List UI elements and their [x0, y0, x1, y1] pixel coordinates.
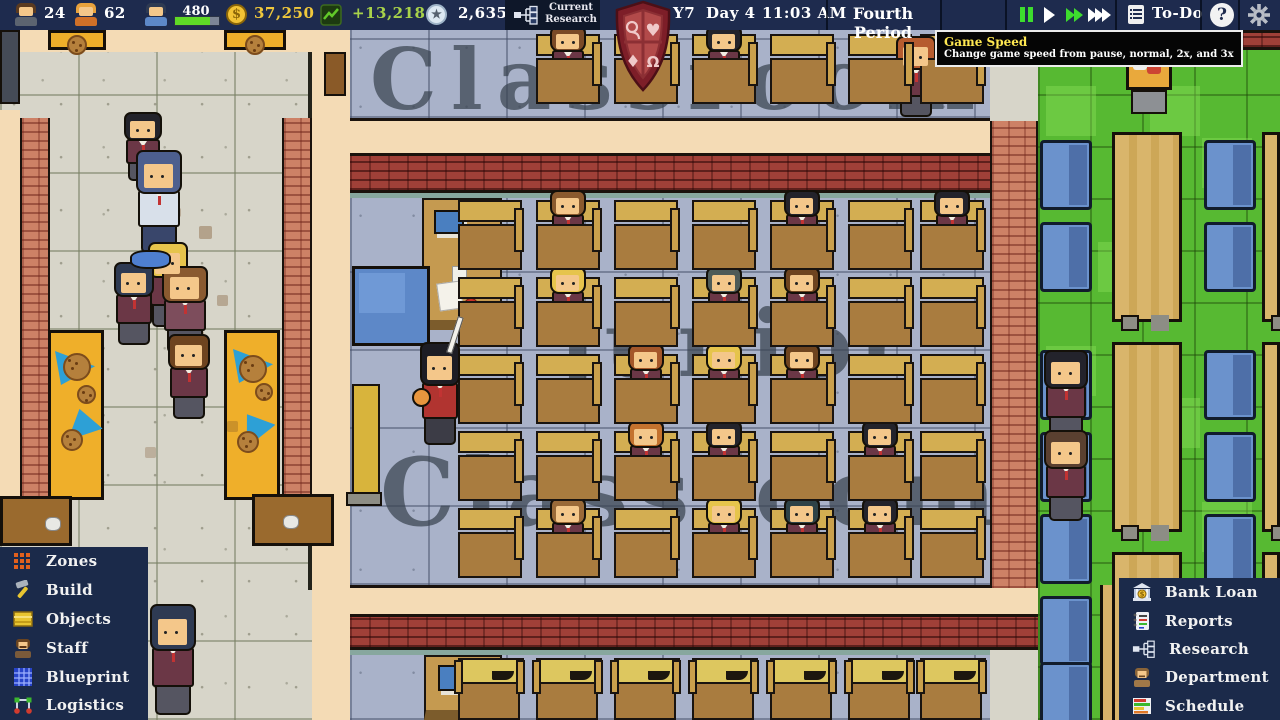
desk-chair[interactable]	[920, 277, 984, 299]
game-window: Classroom Junior Classroom	[0, 0, 1280, 720]
desk-post	[904, 42, 914, 86]
desk-post	[592, 285, 602, 329]
grass-patch	[1046, 86, 1096, 136]
desk-post	[610, 660, 619, 694]
desk[interactable]	[848, 455, 912, 501]
desk-post	[748, 42, 758, 86]
desk-top	[848, 658, 914, 684]
desk-post	[672, 660, 681, 694]
desk-post	[670, 285, 680, 329]
desk-post	[828, 660, 837, 694]
brick-wall-vertical	[20, 118, 50, 502]
desk[interactable]	[920, 682, 982, 720]
banner-base	[346, 492, 382, 506]
menu-item-objects[interactable]: Objects	[0, 605, 148, 634]
desk[interactable]	[614, 455, 678, 501]
menu-item-zones[interactable]: Zones	[0, 547, 148, 576]
desk-post	[916, 660, 925, 694]
brick-wall	[350, 153, 1038, 193]
desk-post	[594, 660, 603, 694]
brick-wall	[350, 614, 1038, 650]
desk-post	[514, 362, 524, 406]
desk-top	[692, 658, 758, 684]
desk-post	[976, 208, 986, 252]
desk-chair[interactable]	[848, 277, 912, 299]
desk-post	[670, 439, 680, 483]
desk[interactable]	[458, 301, 522, 347]
brick-wall-vertical	[990, 121, 1038, 588]
desk[interactable]	[458, 682, 520, 720]
desk[interactable]	[458, 455, 522, 501]
menu-item-blueprint[interactable]: Blueprint	[0, 662, 148, 691]
desk[interactable]	[770, 455, 834, 501]
speed-3x-button-c[interactable]	[1102, 8, 1111, 22]
desk-chair[interactable]	[848, 200, 912, 222]
tooltip-body: Change game speed from pause, normal, 2x…	[944, 49, 1234, 60]
tooltip-title: Game Speed	[944, 35, 1234, 49]
chair[interactable]	[1040, 662, 1092, 720]
desk-chair[interactable]	[458, 508, 522, 530]
desk-post	[826, 42, 836, 86]
money-icon	[226, 4, 247, 25]
janitor-character[interactable]	[136, 150, 182, 254]
zones-grid-icon	[13, 551, 33, 571]
desk-post	[748, 208, 758, 252]
department-person-icon	[1132, 667, 1152, 687]
picnic-table[interactable]	[1112, 342, 1182, 532]
desk-post	[514, 208, 524, 252]
door[interactable]	[324, 52, 346, 96]
management-menu: $ Bank Loan Reports Research	[1119, 578, 1280, 720]
profit-value: +13,218	[352, 4, 425, 22]
cookie-board[interactable]	[48, 330, 104, 500]
desk[interactable]	[614, 224, 678, 270]
desk-top	[614, 658, 680, 684]
speed-2x-button-b[interactable]	[1074, 8, 1083, 22]
points-value: 2,635	[458, 4, 507, 22]
chair[interactable]	[1040, 596, 1092, 666]
desk[interactable]	[770, 224, 834, 270]
desk[interactable]	[692, 682, 754, 720]
desk-post	[670, 362, 680, 406]
desk-chair[interactable]	[458, 431, 522, 453]
snack-table[interactable]	[224, 30, 286, 50]
research-label-line1: Current	[549, 2, 593, 13]
game-speed-tooltip: Game Speed Change game speed from pause,…	[935, 30, 1243, 67]
desk-chair[interactable]	[770, 34, 834, 56]
desk[interactable]	[770, 58, 834, 104]
play-button[interactable]	[1044, 7, 1055, 23]
svg-text:♥: ♥	[645, 21, 660, 41]
snack-table[interactable]	[48, 30, 106, 50]
desk-chair[interactable]	[458, 200, 522, 222]
desk[interactable]	[770, 378, 834, 424]
teacher-count: 24	[44, 4, 66, 22]
desk[interactable]	[848, 224, 912, 270]
chair[interactable]	[1040, 140, 1092, 210]
desk[interactable]	[920, 455, 984, 501]
desk-post	[514, 439, 524, 483]
capacity-bar	[174, 16, 220, 26]
desk-post	[904, 208, 914, 252]
desk-chair[interactable]	[920, 354, 984, 376]
desk[interactable]	[692, 455, 756, 501]
bank-icon: $	[1132, 582, 1152, 602]
student-capacity: 480	[172, 0, 220, 30]
research-label-line2: Research	[545, 14, 597, 25]
student-character[interactable]	[114, 262, 154, 346]
desk-chair[interactable]	[458, 277, 522, 299]
desk-post	[904, 439, 914, 483]
desk[interactable]	[614, 532, 678, 578]
desk[interactable]	[692, 532, 756, 578]
desk-post	[670, 516, 680, 560]
schedule-icon	[1132, 696, 1152, 716]
desk[interactable]	[848, 378, 912, 424]
picnic-table[interactable]	[1112, 132, 1182, 322]
desk-post	[976, 439, 986, 483]
desk[interactable]	[770, 301, 834, 347]
desk-chair[interactable]	[920, 508, 984, 530]
desk[interactable]	[692, 224, 756, 270]
desk-chair[interactable]	[848, 354, 912, 376]
wall-band	[312, 121, 1038, 153]
chair[interactable]	[1204, 350, 1256, 420]
wall-band	[0, 110, 20, 502]
desk-post	[904, 516, 914, 560]
desk-post	[976, 285, 986, 329]
desk-chair[interactable]	[920, 431, 984, 453]
svg-text:Ω: Ω	[647, 53, 660, 71]
menu-item-department[interactable]: Department	[1119, 663, 1280, 691]
desk[interactable]	[920, 532, 984, 578]
logistics-network-icon	[13, 695, 33, 715]
desk-post	[592, 42, 602, 86]
desk-post	[766, 660, 775, 694]
todo-icon[interactable]	[1128, 5, 1144, 24]
desk-post	[748, 285, 758, 329]
desk-post	[748, 439, 758, 483]
desk-post	[592, 362, 602, 406]
desk-post	[826, 362, 836, 406]
desk[interactable]	[458, 378, 522, 424]
desk-post	[844, 660, 853, 694]
menu-item-logistics[interactable]: Logistics	[0, 691, 148, 720]
counter[interactable]	[252, 494, 334, 546]
brick-wall-vertical	[282, 118, 312, 502]
student-character[interactable]	[1044, 430, 1088, 522]
desk[interactable]	[536, 301, 600, 347]
desk-top	[458, 658, 524, 684]
menu-item-build[interactable]: Build	[0, 576, 148, 605]
money-value: 37,250	[254, 4, 314, 22]
desk-chair[interactable]	[614, 277, 678, 299]
menu-item-staff[interactable]: Staff	[0, 633, 148, 662]
desk[interactable]	[692, 378, 756, 424]
bench[interactable]	[352, 266, 430, 346]
desk-post	[906, 660, 915, 694]
chair[interactable]	[1040, 514, 1092, 584]
research-tree-icon	[513, 5, 539, 25]
hammer-icon	[13, 580, 33, 600]
profit-chart-icon	[320, 4, 342, 26]
desk-post	[592, 208, 602, 252]
desk-post	[592, 439, 602, 483]
school-crest-icon[interactable]: ♥ ♦ Ω	[612, 0, 674, 92]
desk-post	[976, 362, 986, 406]
period-label: Fourth Period	[828, 4, 938, 42]
desk-post	[748, 516, 758, 560]
counter[interactable]	[0, 496, 72, 546]
settings-gear-icon[interactable]	[1248, 4, 1270, 26]
reports-icon	[1132, 611, 1152, 631]
desk-chair[interactable]	[614, 508, 678, 530]
desk-post	[592, 516, 602, 560]
desk[interactable]	[614, 301, 678, 347]
desk[interactable]	[536, 682, 598, 720]
staff-person-icon	[13, 638, 33, 658]
menu-item-bank-loan[interactable]: $ Bank Loan	[1119, 578, 1280, 606]
desk-chair[interactable]	[536, 431, 600, 453]
student-character[interactable]	[150, 604, 196, 716]
trash-can-base	[1131, 90, 1167, 114]
desk[interactable]	[536, 58, 600, 104]
desk-chair[interactable]	[614, 200, 678, 222]
desk-chair[interactable]	[692, 200, 756, 222]
desk-post	[826, 516, 836, 560]
chair[interactable]	[1204, 140, 1256, 210]
desk-post	[826, 439, 836, 483]
worker-count: 62	[104, 4, 126, 22]
furniture-icon	[13, 609, 33, 629]
chair[interactable]	[1204, 432, 1256, 502]
desk-post	[748, 362, 758, 406]
desk[interactable]	[536, 455, 600, 501]
todo-label[interactable]: To-Do	[1152, 4, 1203, 22]
desk-post	[826, 285, 836, 329]
desk-post	[904, 285, 914, 329]
desk[interactable]	[692, 58, 756, 104]
chair[interactable]	[1204, 222, 1256, 292]
worker-icon	[74, 3, 98, 26]
desk-post	[532, 660, 541, 694]
desk-post	[516, 660, 525, 694]
desk-post	[514, 516, 524, 560]
desk-top	[920, 658, 986, 684]
desk-post	[750, 660, 759, 694]
svg-text:♦: ♦	[625, 52, 640, 72]
help-button[interactable]: ?	[1210, 3, 1234, 27]
student-character[interactable]	[1044, 350, 1088, 442]
desk[interactable]	[458, 532, 522, 578]
desk[interactable]	[770, 682, 832, 720]
desk-chair[interactable]	[770, 431, 834, 453]
teacher-hand	[412, 388, 431, 407]
build-menu: Zones Build Objects Staff	[0, 547, 148, 720]
current-research-button[interactable]: Current Research	[505, 0, 600, 30]
chair[interactable]	[1204, 514, 1256, 584]
desk[interactable]	[536, 378, 600, 424]
teacher-icon	[14, 3, 38, 26]
desk[interactable]	[920, 301, 984, 347]
picnic-table[interactable]	[1262, 342, 1280, 532]
student-icon	[144, 3, 168, 26]
day-label: Day 4	[706, 4, 756, 22]
desk[interactable]	[848, 682, 910, 720]
research-tree-icon	[1132, 639, 1156, 659]
desk-chair[interactable]	[536, 354, 600, 376]
desk[interactable]	[848, 532, 912, 578]
desk-post	[688, 660, 697, 694]
desk-top	[536, 658, 602, 684]
desk-post	[826, 208, 836, 252]
student-character[interactable]	[168, 334, 210, 420]
points-icon	[426, 4, 447, 25]
wall-band	[312, 588, 1038, 614]
game-scene: Classroom Junior Classroom	[0, 0, 1280, 720]
desk[interactable]	[920, 378, 984, 424]
year-label: Y7	[673, 4, 695, 22]
desk-post	[514, 285, 524, 329]
picnic-table[interactable]	[1262, 132, 1280, 322]
blueprint-grid-icon	[13, 667, 33, 687]
desk-post	[454, 660, 463, 694]
menu-item-schedule[interactable]: Schedule	[1119, 692, 1280, 720]
desk[interactable]	[692, 301, 756, 347]
desk-post	[670, 208, 680, 252]
desk-post	[976, 516, 986, 560]
desk-post	[978, 660, 987, 694]
desk[interactable]	[614, 682, 676, 720]
desk[interactable]	[770, 532, 834, 578]
desk[interactable]	[536, 224, 600, 270]
desk[interactable]	[536, 532, 600, 578]
menu-item-reports[interactable]: Reports	[1119, 606, 1280, 634]
banner[interactable]	[352, 384, 380, 500]
chair[interactable]	[1040, 222, 1092, 292]
svg-text:$: $	[1140, 591, 1145, 599]
desk-top	[770, 658, 836, 684]
desk[interactable]	[848, 301, 912, 347]
doorway	[0, 30, 20, 104]
cookie-board[interactable]	[224, 330, 280, 500]
desk-chair[interactable]	[458, 354, 522, 376]
desk[interactable]	[614, 378, 678, 424]
desk[interactable]	[920, 224, 984, 270]
menu-item-research[interactable]: Research	[1119, 635, 1280, 663]
desk-post	[904, 362, 914, 406]
desk[interactable]	[458, 224, 522, 270]
